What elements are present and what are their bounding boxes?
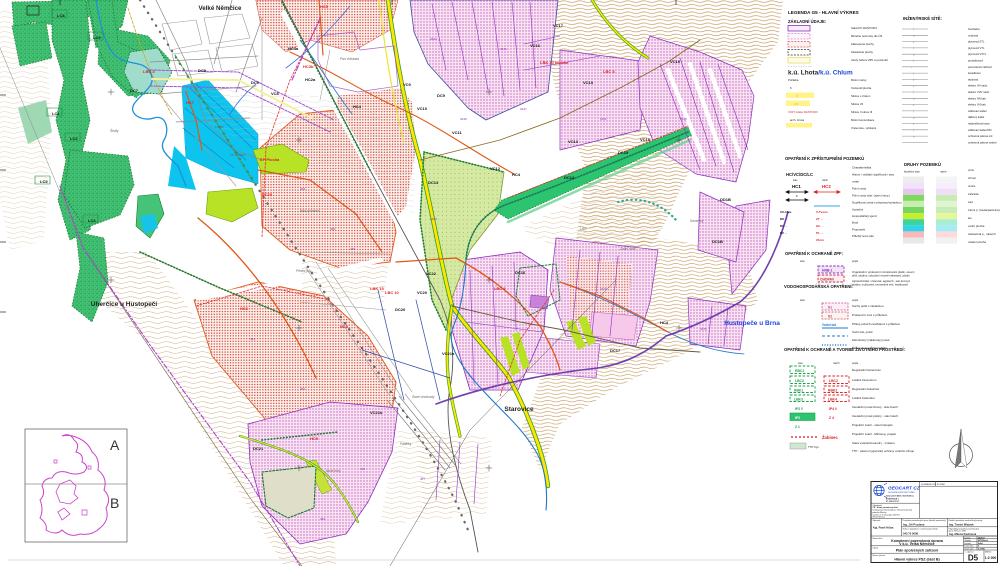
svg-text:ZÁKLADNÍ ÚDAJE:: ZÁKLADNÍ ÚDAJE: — [788, 19, 826, 24]
svg-text:orná: orná — [968, 168, 974, 172]
svg-text:plynovod STL: plynovod STL — [968, 40, 985, 44]
svg-text:Polní cesty stáv. (zpev./nezp.: Polní cesty stáv. (zpev./nezp.) — [852, 194, 890, 198]
svg-text:Název akce:: Název akce: — [873, 538, 884, 540]
svg-text:DC14: DC14 — [564, 175, 575, 180]
svg-text:HC4: HC4 — [353, 104, 362, 109]
svg-text:INŽENÝRSKÉ SÍTĚ:: INŽENÝRSKÉ SÍTĚ: — [903, 16, 942, 21]
svg-text:Příkop polních cest/hlavní s p: Příkop polních cest/hlavní s průlehem — [852, 322, 901, 326]
svg-text:DC8: DC8 — [198, 68, 207, 73]
svg-text:HC2a: HC2a — [305, 77, 316, 82]
svg-text:sdělovací kabel: sdělovací kabel — [968, 109, 987, 113]
svg-text:IP2: IP2 — [795, 416, 800, 420]
svg-text:690 02 Břeclav: 690 02 Břeclav — [873, 517, 886, 519]
svg-text:teplovod: teplovod — [968, 77, 979, 81]
svg-text:VC11: VC11 — [452, 130, 463, 135]
svg-text:ZT →: ZT → — [816, 217, 824, 221]
svg-text:Z 4: Z 4 — [829, 416, 834, 420]
svg-text:pozemková zařízení: pozemková zařízení — [968, 65, 992, 69]
svg-text:Staré vinohrady: Staré vinohrady — [412, 395, 435, 399]
svg-text:Učely záboru ZPF a pozemků: Učely záboru ZPF a pozemků — [851, 58, 888, 62]
svg-text:VC17: VC17 — [553, 23, 564, 28]
svg-text:Ing. Jiří Pozdena: Ing. Jiří Pozdena — [903, 523, 925, 527]
svg-text:P1 ↔: P1 ↔ — [816, 231, 824, 235]
svg-text:A: A — [110, 437, 120, 453]
svg-text:Starovice: Starovice — [504, 406, 534, 413]
svg-text:CHOPAV: CHOPAV — [820, 278, 835, 282]
svg-text:Nad výhonem: Nad výhonem — [300, 209, 320, 213]
svg-text:LBC 9: LBC 9 — [494, 286, 506, 291]
svg-text:Zatrubněný (zaklenutý) potok: Zatrubněný (zaklenutý) potok — [852, 338, 890, 342]
svg-text:HC4: HC4 — [512, 172, 521, 177]
svg-text:Ing. Milena Kudrnová: Ing. Milena Kudrnová — [949, 532, 977, 536]
svg-text:DC9: DC9 — [437, 93, 446, 98]
svg-text:Úředně oprávněný zeměměřický i: Úředně oprávněný zeměměřický inženýr: — [949, 519, 984, 522]
svg-text:GEOCART CZ: GEOCART CZ — [888, 486, 921, 492]
svg-text:Vedoucí projektant a autorizov: Vedoucí projektant a autorizovaný inžený… — [903, 528, 939, 531]
svg-text:D5: D5 — [968, 554, 979, 563]
svg-text:Stará PC RASTOFIX: Stará PC RASTOFIX — [851, 26, 877, 30]
svg-text:GEODÉZIE A PROJEKTOVÁNÍ: GEODÉZIE A PROJEKTOVÁNÍ — [888, 491, 915, 494]
svg-text:Organizační: protierozní rozmí: Organizační: protierozní rozmísťování pl… — [852, 270, 915, 274]
svg-text:Kamenný: Kamenný — [690, 219, 704, 223]
svg-text:3449: 3449 — [460, 117, 467, 121]
svg-text:VODOHOSPODÁŘSKÁ OPATŘENÍ:: VODOHOSPODÁŘSKÁ OPATŘENÍ: — [784, 284, 853, 289]
svg-text:Protierozní mez s průlehem: Protierozní mez s průlehem — [852, 313, 888, 317]
svg-text:Louče: Louče — [215, 125, 224, 129]
svg-text:přísl. plodiny, vyloučení eroz: přísl. plodiny, vyloučení erozně nebezpe… — [852, 274, 910, 278]
svg-text:Místní názvy: Místní názvy — [851, 78, 867, 82]
svg-text:DC21: DC21 — [253, 446, 264, 451]
svg-text:IP2 ‖: IP2 ‖ — [795, 407, 803, 411]
svg-text:DC16: DC16 — [515, 270, 526, 275]
svg-text:RBK1: RBK1 — [794, 389, 803, 393]
svg-text:3447: 3447 — [520, 107, 527, 111]
svg-text:HC4a: HC4a — [288, 46, 299, 51]
svg-text:Vrstevnice, výškopis: Vrstevnice, výškopis — [851, 126, 877, 130]
svg-text:3446: 3446 — [500, 47, 507, 51]
svg-text:3441: 3441 — [600, 117, 607, 121]
svg-text:popis: popis — [852, 361, 859, 365]
svg-text:EP Plocka: EP Plocka — [260, 157, 280, 162]
svg-text:chmel: chmel — [968, 176, 976, 180]
svg-text:V-Tveno: V-Tveno — [816, 210, 828, 214]
svg-text:Charakteristika: Charakteristika — [852, 166, 872, 170]
svg-text:LC2: LC2 — [70, 136, 78, 141]
svg-text:DRUHY POZEMKŮ: DRUHY POZEMKŮ — [904, 162, 941, 167]
svg-text:vodovod: vodovod — [968, 33, 979, 37]
svg-text:DC7: DC7 — [130, 88, 139, 93]
svg-text:Silnice II okres III: Silnice II okres III — [851, 110, 873, 114]
svg-text:zastavěná p., nádvoří: zastavěná p., nádvoří — [968, 232, 996, 236]
svg-text:sad: sad — [968, 200, 973, 204]
svg-text:452: 452 — [300, 387, 305, 391]
svg-text:SOUŘADNICOVÝ SYSTÉM: SOUŘADNICOVÝ SYSTÉM — [921, 483, 945, 486]
svg-text:Plán společných zařízení: Plán společných zařízení — [896, 549, 940, 553]
svg-text:OPATŘENÍ K OCHRANĚ ZPF:: OPATŘENÍ K OCHRANĚ ZPF: — [785, 251, 843, 256]
svg-text:446: 446 — [330, 227, 335, 231]
svg-text:vodní plocha: vodní plocha — [968, 224, 985, 228]
svg-text:459: 459 — [320, 517, 325, 521]
svg-text:Agrotechnické: vrstevnat. agro: Agrotechnické: vrstevnat. agrotech., set… — [852, 279, 910, 283]
svg-text:HC6: HC6 — [240, 306, 249, 311]
svg-text:LBK 10 koridor: LBK 10 koridor — [540, 60, 569, 65]
svg-text:plodiny, mulčování, bezorebné: plodiny, mulčování, bezorebné setí, hráz… — [852, 283, 908, 287]
svg-text:Doplňková cesta s přepravy/výs: Doplňková cesta s přepravy/výstavbou — [852, 201, 902, 205]
svg-text:HC ←: HC ← — [816, 224, 824, 228]
svg-text:Brod: Brod — [852, 221, 858, 225]
svg-text:TTP - pásmo hygienické ochrany: TTP - pásmo hygienické ochrany vodního z… — [852, 449, 914, 453]
svg-text:2: 2 — [978, 546, 979, 548]
svg-text:kanalizace: kanalizace — [968, 71, 981, 75]
svg-text:Měřítko:: Měřítko: — [985, 551, 992, 554]
svg-text:Hustopeče u Brna: Hustopeče u Brna — [724, 320, 780, 327]
svg-text:DD1B: DD1B — [720, 197, 731, 202]
svg-text:IČ: 255 123 17: IČ: 255 123 17 — [886, 500, 900, 503]
svg-text:VC-hlav.: VC-hlav. — [780, 210, 792, 214]
svg-text:Stupeň:: Stupeň: — [965, 539, 972, 542]
svg-text:Hospodářský sjezd: Hospodářský sjezd — [852, 214, 877, 218]
svg-text:VC16: VC16 — [530, 43, 541, 48]
svg-text:Propustek: Propustek — [852, 228, 866, 232]
svg-text:Padělky: Padělky — [400, 442, 412, 446]
svg-text:LC4: LC4 — [88, 218, 96, 223]
svg-text:DK →: DK → — [780, 217, 788, 221]
svg-text:VC18: VC18 — [640, 137, 651, 142]
svg-text:ochranná pásma sítí: ochranná pásma sítí — [968, 134, 993, 138]
svg-text:Formát:: Formát: — [965, 542, 972, 545]
svg-text:Polní cesty: Polní cesty — [852, 187, 867, 191]
svg-text:Zastavěné plochy: Zastavěné plochy — [851, 50, 874, 54]
svg-text:OPATŘENÍ K OCHRANĚ A TVORBĚ: OPATŘENÍ K OCHRANĚ A TVORBĚ ŽIVOTNÍHO PR… — [784, 347, 905, 352]
svg-text:DC15: DC15 — [618, 150, 629, 155]
svg-text:Projektant pozemkových úprav (: Projektant pozemkových úprav (úředně opr… — [903, 519, 947, 522]
svg-text:Kpj. Pavel Hrůza: Kpj. Pavel Hrůza — [873, 526, 894, 530]
svg-text:DC13: DC13 — [428, 180, 439, 185]
svg-text:3470: 3470 — [600, 287, 607, 291]
svg-text:popis: popis — [852, 259, 859, 263]
svg-text:LC5: LC5 — [40, 179, 48, 184]
svg-text:Žabinec: Žabinec — [822, 435, 838, 440]
svg-text:Stará vodoteč/meandry - zrušen: Stará vodoteč/meandry - zrušeno — [852, 441, 895, 445]
svg-text:elektro NN kab.: elektro NN kab. — [968, 96, 987, 100]
svg-text:VC20: VC20 — [417, 290, 428, 295]
svg-text:VC19: VC19 — [670, 59, 681, 64]
svg-text:S-JTSK: S-JTSK — [978, 549, 985, 551]
svg-text:elektro VN nadz.: elektro VN nadz. — [968, 84, 988, 88]
svg-text:3460: 3460 — [430, 217, 437, 221]
svg-text:HC2: HC2 — [822, 184, 831, 189]
svg-text:RBC1: RBC1 — [795, 369, 804, 373]
svg-text:Vodoměr/plocha: Vodoměr/plocha — [851, 86, 872, 90]
svg-text:DC9: DC9 — [251, 80, 260, 85]
svg-text:RBK2: RBK2 — [828, 389, 837, 393]
svg-text:hovětelna: hovětelna — [968, 27, 980, 31]
svg-text:LEGENDA G5 - HLAVNÍ VÝKRES: LEGENDA G5 - HLAVNÍ VÝKRES — [788, 8, 859, 15]
svg-text:VC9: VC9 — [403, 82, 412, 87]
svg-text:IP4 ‖: IP4 ‖ — [829, 407, 837, 411]
svg-text:Regionální biokoridor: Regionální biokoridor — [852, 387, 879, 391]
svg-text:Z1cm: Z1cm — [816, 238, 824, 242]
svg-text:Lokální biocentrum: Lokální biocentrum — [852, 378, 877, 382]
svg-text:LBC2: LBC2 — [829, 379, 838, 383]
svg-text:VC22: VC22 — [426, 271, 437, 276]
svg-text:LC1: LC1 — [52, 111, 60, 116]
svg-text:3444: 3444 — [430, 37, 437, 41]
svg-text:radioreléová trasa: radioreléová trasa — [968, 122, 990, 126]
svg-text:LBK 15: LBK 15 — [370, 286, 385, 291]
svg-text:LBC 4: LBC 4 — [143, 69, 155, 74]
svg-text:plynovod VVTL: plynovod VVTL — [968, 52, 987, 56]
svg-text:HC4: HC4 — [660, 320, 669, 325]
svg-text:Regionální biocentrum: Regionální biocentrum — [852, 368, 882, 372]
svg-text:sdělovací kabel MO: sdělovací kabel MO — [968, 128, 992, 132]
svg-text:HC9: HC9 — [310, 436, 319, 441]
svg-text:produktovod: produktovod — [968, 59, 983, 63]
svg-text:457: 457 — [420, 477, 425, 481]
svg-text:Uherčice u Hustopečí: Uherčice u Hustopečí — [91, 301, 158, 308]
svg-text:vztah: vztah — [852, 180, 859, 184]
svg-text:HC1: HC1 — [792, 184, 801, 189]
svg-text:VÚ37 mléko RASTOFIX: VÚ37 mléko RASTOFIX — [788, 109, 818, 114]
svg-text:popis: popis — [852, 298, 859, 302]
svg-text:ochranná pásma vedení: ochranná pásma vedení — [968, 140, 997, 144]
svg-text:DC20: DC20 — [395, 307, 406, 312]
svg-text:Ve Vodách: Ve Vodách — [230, 153, 246, 157]
svg-text:Výstaviště 405/1, 603 00 Brno: Výstaviště 405/1, 603 00 Brno — [886, 495, 915, 498]
svg-text:LBK3: LBK3 — [794, 398, 803, 402]
svg-text:Z 1: Z 1 — [795, 425, 800, 429]
svg-text:Zakoupené plochy: Zakoupené plochy — [851, 42, 874, 46]
svg-text:dálkový kabel: dálkový kabel — [968, 115, 985, 119]
svg-text:stav: stav — [800, 259, 805, 263]
svg-text:Zadní hora: Zadní hora — [619, 247, 636, 251]
svg-text:Velké Němčice: Velké Němčice — [198, 5, 242, 12]
svg-text:zahrada: zahrada — [968, 192, 979, 196]
svg-text:skutečný stav: skutečný stav — [904, 170, 920, 174]
svg-text:KPÚ/Návrh: KPÚ/Návrh — [978, 539, 989, 542]
svg-text:HNB-1: HNB-1 — [822, 269, 832, 273]
svg-text:Název výkresu:: Název výkresu: — [873, 554, 886, 557]
svg-text:HC7: HC7 — [186, 100, 195, 105]
svg-text:návrh: návrh — [940, 170, 947, 174]
svg-text:VC21b: VC21b — [370, 410, 383, 415]
svg-text:arch. Lhota: arch. Lhota — [790, 118, 804, 122]
svg-text:Hlavní výkres PSZ (část B): Hlavní výkres PSZ (část B) — [894, 558, 940, 562]
svg-text:Obsah:: Obsah: — [873, 548, 880, 550]
svg-text:451: 451 — [250, 337, 255, 341]
svg-text:k.ú. Lhota/k.ú. Chlum: k.ú. Lhota/k.ú. Chlum — [788, 70, 853, 77]
svg-text:HC3b: HC3b — [303, 64, 314, 69]
svg-text:LC9: LC9 — [93, 35, 101, 40]
svg-text:OPATŘENÍ K ZPŘÍSTUPNĚNÍ POZEM: OPATŘENÍ K ZPŘÍSTUPNĚNÍ POZEMKŮ — [785, 156, 864, 161]
svg-text:BYSTRCKÁ 1: BYSTRCKÁ 1 — [886, 497, 900, 500]
svg-text:VC10: VC10 — [417, 106, 428, 111]
svg-text:HC8: HC8 — [340, 324, 349, 329]
svg-text:Interakční prvek liniový - stá: Interakční prvek liniový - stáv./návrh — [852, 405, 898, 409]
svg-text:Projekční zeleň - Mikroreg. pr: Projekční zeleň - Mikroreg. projekt — [852, 432, 896, 436]
svg-text:B: B — [110, 495, 119, 511]
svg-text:Suchý poldr s zástavbou: Suchý poldr s zástavbou — [852, 304, 884, 308]
svg-text:N1: N1 — [828, 306, 832, 310]
svg-text:Hlavní / vedlejší doplňková /: Hlavní / vedlejší doplňková / stav. — [852, 173, 895, 177]
svg-text:Projekční zeleň - obecní/proje: Projekční zeleň - obecní/projekt — [852, 423, 893, 427]
svg-text:1:2 000: 1:2 000 — [985, 556, 997, 560]
svg-text:3476: 3476 — [700, 327, 707, 331]
svg-text:DC1B: DC1B — [712, 239, 723, 244]
svg-text:VC8: VC8 — [271, 91, 280, 96]
svg-text:DU ←: DU ← — [780, 224, 788, 228]
svg-text:Přilehlý lesní pás: Přilehlý lesní pás — [852, 234, 874, 238]
svg-text:Vodní tok: Vodní tok — [822, 323, 837, 327]
svg-text:návrh: návrh — [833, 361, 840, 365]
svg-text:PZ ↔: PZ ↔ — [780, 231, 788, 235]
svg-text:travní p. (louka/pastvina): travní p. (louka/pastvina) — [968, 208, 1000, 212]
svg-text:LBC 10: LBC 10 — [385, 290, 400, 295]
svg-text:HC5: HC5 — [320, 4, 329, 9]
svg-text:Liščí: Liščí — [580, 227, 588, 231]
svg-text:elektro VN kab.: elektro VN kab. — [968, 103, 987, 107]
svg-text:LC8: LC8 — [57, 13, 65, 18]
svg-text:Lokální biokoridor: Lokální biokoridor — [852, 396, 875, 400]
svg-text:Vyústění: Vyústění — [852, 208, 863, 212]
svg-text:ostatní plocha: ostatní plocha — [968, 240, 986, 244]
svg-text:443: 443 — [300, 187, 305, 191]
svg-text:les: les — [968, 216, 972, 220]
svg-text:elektro VVN nadz.: elektro VVN nadz. — [968, 90, 990, 94]
svg-text:Nové hory: Nové hory — [326, 469, 341, 473]
svg-text:Vodní tok, potok: Vodní tok, potok — [852, 330, 873, 334]
svg-text:LBK4: LBK4 — [828, 398, 837, 402]
svg-text:Datum:: Datum: — [965, 536, 972, 539]
svg-text:Silnice s číslem: Silnice s číslem — [851, 94, 871, 98]
svg-text:VC13: VC13 — [568, 139, 579, 144]
svg-text:VC21a: VC21a — [442, 351, 455, 356]
svg-text:plynovod VTL: plynovod VTL — [968, 46, 985, 50]
svg-text:Vyhotovil:: Vyhotovil: — [873, 519, 882, 522]
svg-text:Silnice I/II: Silnice I/II — [851, 102, 863, 106]
svg-text:04/2017: 04/2017 — [978, 536, 985, 539]
svg-text:návrh: návrh — [822, 179, 829, 182]
svg-text:VC15: VC15 — [583, 80, 594, 85]
svg-text:VC12: VC12 — [490, 166, 501, 171]
svg-text:448: 448 — [350, 247, 355, 251]
svg-text:vinice: vinice — [968, 184, 976, 188]
svg-text:LBC2: LBC2 — [795, 379, 804, 383]
svg-text:Souř. syst.:: Souř. syst.: — [965, 548, 975, 551]
svg-text:▪: ▪ — [911, 66, 912, 69]
svg-text:3438: 3438 — [680, 117, 687, 121]
svg-text:TTP býv.: TTP býv. — [808, 445, 819, 449]
svg-text:HC/VC/DC/LC: HC/VC/DC/LC — [786, 172, 813, 177]
svg-text:Měněné pozemky dle ÚS: Měněné pozemky dle ÚS — [851, 33, 882, 38]
svg-text:Štráfy: Štráfy — [110, 128, 119, 133]
svg-text:Interakční prvek plošný - stáv: Interakční prvek plošný - stáv./návrh — [852, 414, 899, 418]
svg-text:545 70 5008: 545 70 5008 — [903, 532, 918, 536]
svg-text:Pan Vohánka: Pan Vohánka — [340, 57, 359, 61]
svg-text:stav: stav — [800, 298, 805, 302]
svg-text:DC10: DC10 — [262, 192, 273, 197]
svg-text:LBC 8: LBC 8 — [603, 69, 615, 74]
svg-text:Místní komunikace: Místní komunikace — [851, 118, 875, 122]
svg-text:Požárka: Požárka — [788, 78, 799, 82]
svg-text:455: 455 — [360, 467, 365, 471]
svg-text:Ing. Tomáš Mlejnek: Ing. Tomáš Mlejnek — [949, 523, 974, 527]
svg-text:Přední díly: Přední díly — [296, 269, 312, 273]
svg-text:v k.ú. Velká Němčice: v k.ú. Velká Němčice — [899, 542, 934, 546]
svg-text:stav: stav — [798, 361, 803, 365]
svg-text:N2: N2 — [828, 315, 832, 319]
svg-text:Počet listů:: Počet listů: — [965, 545, 975, 548]
svg-text:DC17: DC17 — [610, 348, 621, 353]
